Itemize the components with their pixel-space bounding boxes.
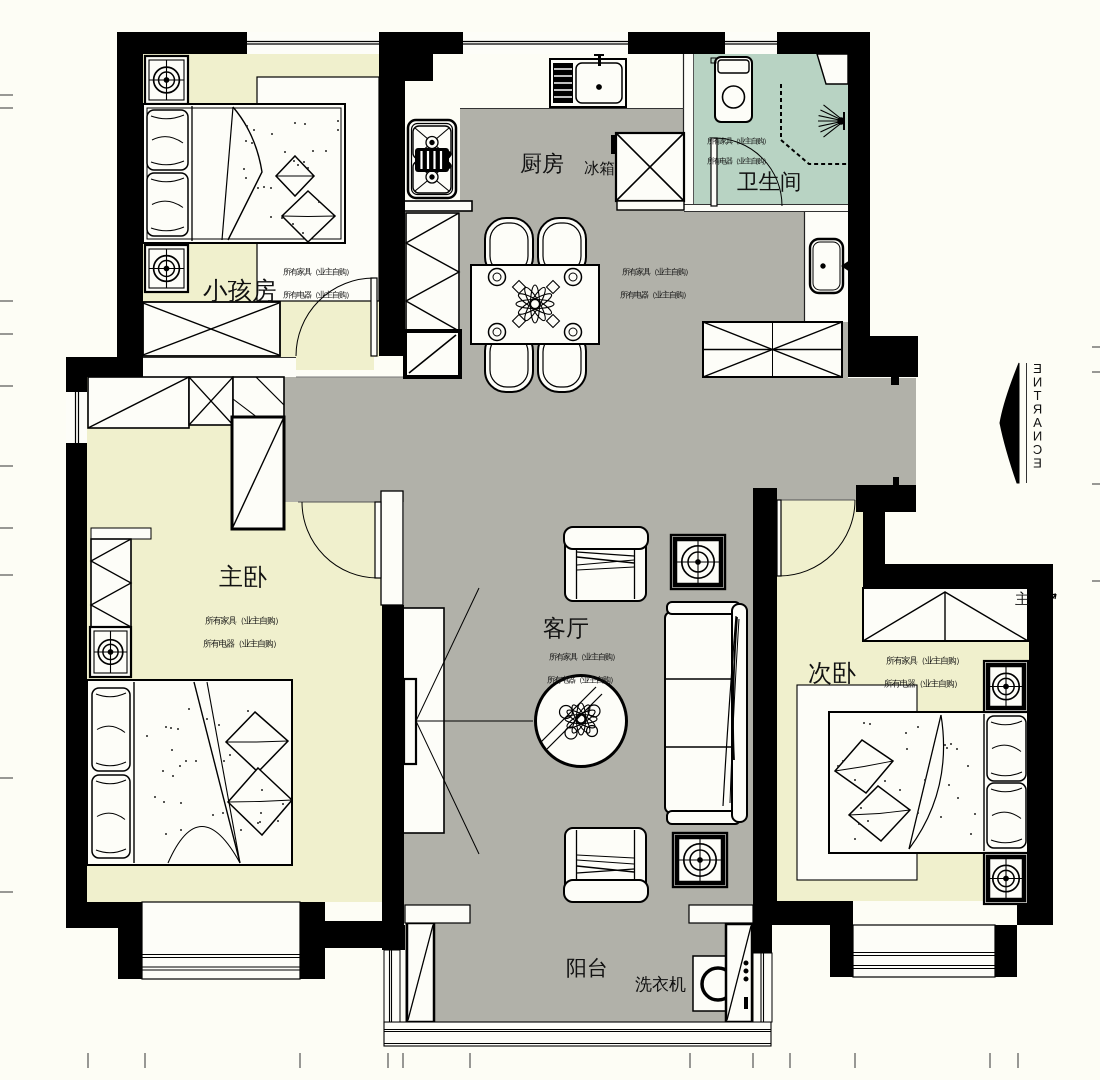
svg-text:E: E — [1033, 456, 1042, 471]
